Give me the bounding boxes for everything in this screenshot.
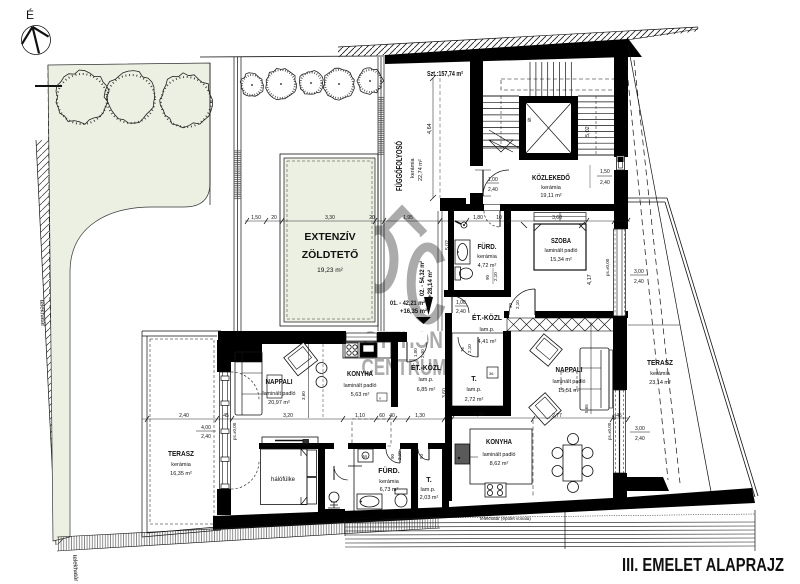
- svg-text:3,60: 3,60: [442, 388, 448, 398]
- svg-text:ps.±0,00: ps.±0,00: [607, 422, 612, 440]
- svg-text:kerámia: kerámia: [379, 479, 400, 485]
- svg-text:1,00: 1,00: [488, 177, 498, 183]
- svg-text:laminált padló: laminált padló: [263, 391, 296, 397]
- svg-text:1,80: 1,80: [474, 412, 484, 418]
- svg-text:T.: T.: [471, 376, 477, 383]
- svg-text:2,10: 2,10: [467, 344, 472, 353]
- svg-text:90: 90: [419, 453, 424, 459]
- svg-text:ÉT.-KÖZL: ÉT.-KÖZL: [411, 363, 442, 372]
- svg-text:22,74 m²: 22,74 m²: [418, 159, 424, 181]
- svg-text:20,97 m²: 20,97 m²: [268, 400, 290, 406]
- svg-text:45: 45: [616, 413, 622, 419]
- svg-text:laminált padló: laminált padló: [553, 379, 586, 385]
- svg-text:8,62 m²: 8,62 m²: [490, 461, 509, 467]
- svg-text:1,80: 1,80: [473, 215, 483, 221]
- svg-text:2,40: 2,40: [600, 180, 610, 186]
- svg-text:3,30: 3,30: [325, 215, 335, 221]
- svg-text:1,00: 1,00: [456, 300, 466, 306]
- svg-text:lift: lift: [527, 117, 532, 122]
- svg-text:3,68: 3,68: [552, 215, 562, 221]
- svg-text:laminált padló: laminált padló: [483, 452, 516, 458]
- svg-text:lam.p.: lam.p.: [421, 487, 436, 493]
- svg-text:EXTENZÍV: EXTENZÍV: [304, 230, 355, 243]
- svg-text:2,40: 2,40: [488, 187, 498, 193]
- svg-text:16,35 m²: 16,35 m²: [170, 471, 192, 477]
- svg-text:40: 40: [389, 413, 395, 419]
- svg-text:2,10: 2,10: [493, 272, 498, 281]
- svg-text:KONYHA: KONYHA: [486, 437, 512, 446]
- svg-text:19,11 m²: 19,11 m²: [540, 193, 561, 199]
- svg-text:FÜRD.: FÜRD.: [478, 242, 497, 251]
- svg-text:M: M: [363, 454, 367, 459]
- svg-text:4,41 m²: 4,41 m²: [478, 339, 497, 345]
- svg-text:kerámia: kerámia: [410, 157, 416, 178]
- svg-text:FÜRD.: FÜRD.: [378, 466, 399, 475]
- svg-text:x: x: [379, 396, 381, 401]
- svg-text:T.: T.: [426, 477, 432, 484]
- svg-text:90: 90: [508, 302, 513, 308]
- svg-text:TERASZ: TERASZ: [168, 451, 195, 458]
- svg-text:1,50: 1,50: [251, 215, 261, 221]
- svg-text:02. - 54,32 m²: 02. - 54,32 m²: [419, 260, 426, 296]
- svg-text:ÉT.-KÖZL: ÉT.-KÖZL: [472, 313, 503, 322]
- svg-text:3,00: 3,00: [634, 269, 644, 275]
- svg-text:5,65: 5,65: [584, 404, 589, 413]
- svg-text:2,40: 2,40: [635, 436, 645, 442]
- svg-text:NAPPALI: NAPPALI: [266, 377, 293, 386]
- svg-text:1,00: 1,00: [413, 348, 418, 357]
- svg-text:2,72 m²: 2,72 m²: [465, 397, 484, 403]
- svg-text:ps.±0,00: ps.±0,00: [605, 258, 610, 276]
- svg-text:Szt.:157,74 m²: Szt.:157,74 m²: [427, 71, 464, 78]
- svg-text:III. EMELET ALAPRAJZ: III. EMELET ALAPRAJZ: [622, 554, 784, 575]
- svg-text:3,60: 3,60: [301, 391, 306, 400]
- svg-text:kerámia: kerámia: [171, 462, 192, 468]
- svg-text:2,40: 2,40: [456, 309, 466, 315]
- svg-text:+28,14 m²: +28,14 m²: [427, 269, 434, 298]
- svg-text:90: 90: [485, 274, 490, 280]
- svg-text:2,40: 2,40: [201, 434, 211, 440]
- svg-text:NAPPALI: NAPPALI: [556, 365, 583, 374]
- svg-text:É: É: [26, 7, 34, 22]
- svg-text:lam.p.: lam.p.: [467, 387, 482, 393]
- svg-text:5,02: 5,02: [585, 126, 591, 137]
- svg-text:lam.p.: lam.p.: [480, 327, 495, 333]
- svg-text:75: 75: [460, 346, 465, 352]
- svg-text:4,64: 4,64: [427, 123, 433, 134]
- svg-text:6,85 m²: 6,85 m²: [417, 387, 436, 393]
- svg-text:15,34 m²: 15,34 m²: [550, 257, 572, 263]
- svg-text:ZÖLDTETŐ: ZÖLDTETŐ: [302, 248, 359, 261]
- svg-text:lam.p.: lam.p.: [419, 377, 434, 383]
- svg-text:2,40: 2,40: [634, 279, 644, 285]
- svg-text:telekhatár (épület vonala): telekhatár (épület vonala): [480, 516, 531, 521]
- svg-text:1,95: 1,95: [403, 215, 413, 221]
- svg-text:4,72 m²: 4,72 m²: [478, 263, 497, 269]
- svg-text:4,17: 4,17: [587, 274, 593, 285]
- svg-text:45: 45: [223, 413, 229, 419]
- svg-text:60: 60: [379, 413, 385, 419]
- svg-text:laminált padló: laminált padló: [545, 248, 578, 254]
- svg-text:ps.±0,00: ps.±0,00: [232, 422, 237, 440]
- svg-text:kerámia: kerámia: [541, 185, 562, 191]
- svg-text:3,00: 3,00: [635, 426, 645, 432]
- svg-text:01. - 42,21 m²: 01. - 42,21 m²: [390, 300, 426, 307]
- svg-text:36: 36: [489, 371, 494, 376]
- svg-text:3,20: 3,20: [283, 413, 293, 419]
- svg-text:2,03 m²: 2,03 m²: [420, 495, 439, 501]
- svg-text:20: 20: [369, 215, 375, 221]
- svg-text:2,40: 2,40: [179, 413, 189, 419]
- svg-text:23,14 m²: 23,14 m²: [649, 380, 671, 386]
- svg-text:FÜGGŐFOLYOSÓ: FÜGGŐFOLYOSÓ: [395, 141, 404, 191]
- svg-text:1,30: 1,30: [415, 413, 425, 419]
- svg-text:2,10: 2,10: [515, 300, 520, 309]
- svg-text:90: 90: [390, 453, 395, 459]
- svg-text:2,10: 2,10: [397, 451, 402, 460]
- svg-text:4,00: 4,00: [201, 425, 211, 431]
- svg-text:5,02: 5,02: [445, 240, 451, 250]
- svg-text:5,63 m²: 5,63 m²: [351, 392, 370, 398]
- svg-text:20: 20: [271, 215, 277, 221]
- svg-text:2,40: 2,40: [420, 349, 425, 358]
- svg-text:+16,35 m²: +16,35 m²: [400, 308, 428, 315]
- svg-text:hálófülke: hálófülke: [271, 477, 296, 483]
- svg-text:KÖZLEKEDŐ: KÖZLEKEDŐ: [532, 173, 570, 182]
- svg-text:1,10: 1,10: [355, 413, 365, 419]
- svg-text:SZOBA: SZOBA: [551, 236, 571, 245]
- svg-text:kerámia: kerámia: [477, 254, 498, 260]
- svg-text:19,23 m²: 19,23 m²: [317, 267, 343, 274]
- svg-text:10: 10: [496, 215, 502, 221]
- svg-text:laminált padló: laminált padló: [344, 383, 377, 389]
- svg-text:6,73 m²: 6,73 m²: [380, 487, 399, 493]
- svg-text:TERASZ: TERASZ: [647, 360, 674, 367]
- svg-text:KONYHA: KONYHA: [347, 369, 373, 378]
- svg-text:2,77: 2,77: [552, 413, 562, 419]
- svg-text:1,50: 1,50: [600, 169, 610, 175]
